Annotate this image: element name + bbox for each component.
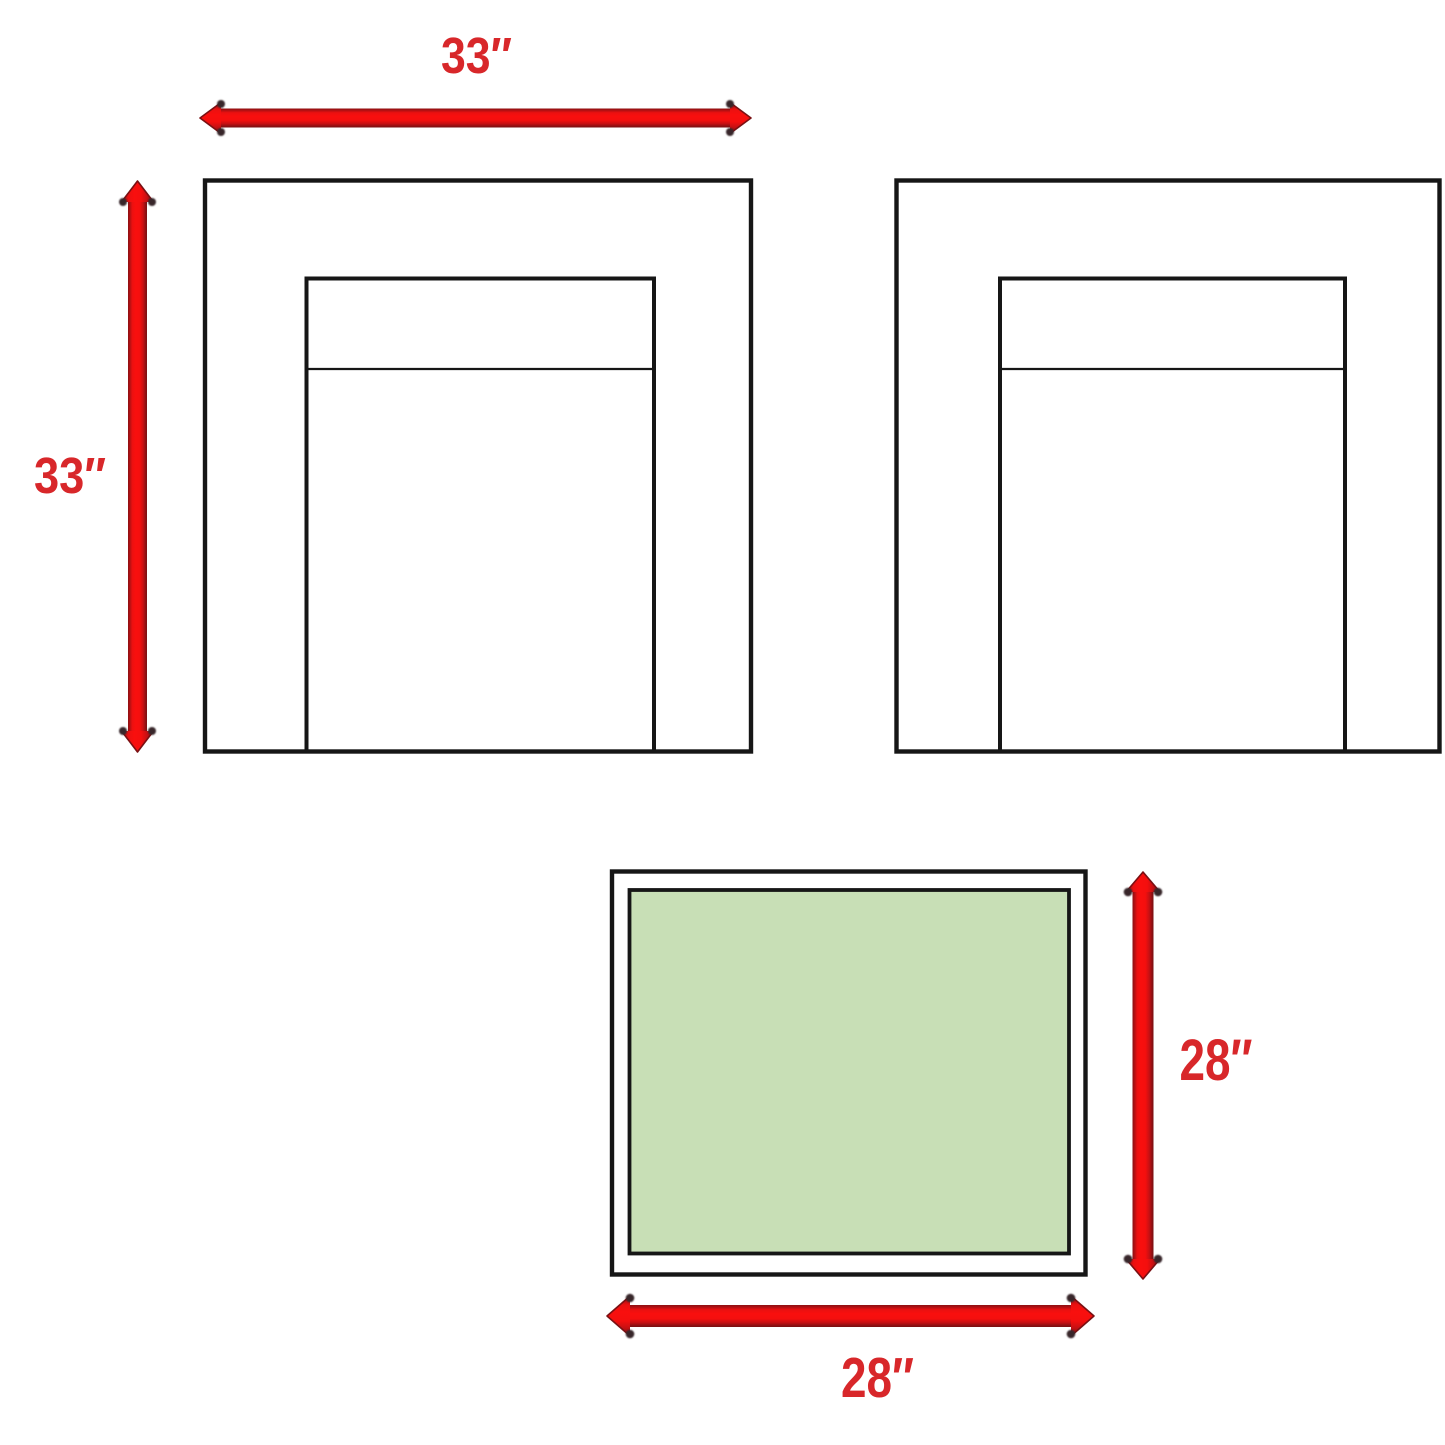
svg-text:28″: 28″ bbox=[1180, 1028, 1253, 1093]
svg-text:33″: 33″ bbox=[441, 27, 512, 84]
svg-text:28″: 28″ bbox=[841, 1346, 914, 1410]
svg-text:33″: 33″ bbox=[34, 447, 106, 504]
